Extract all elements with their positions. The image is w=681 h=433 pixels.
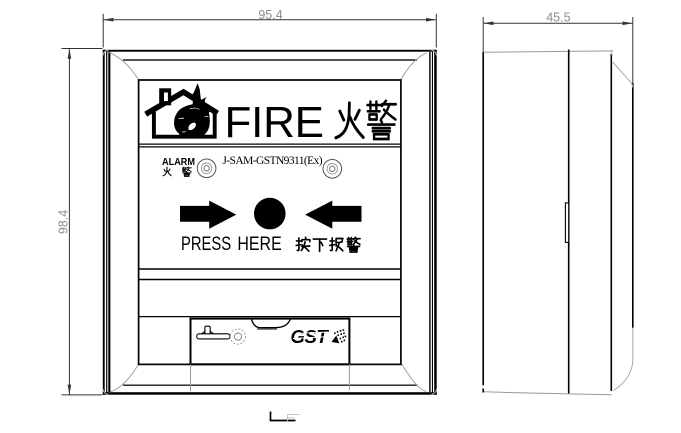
svg-text:FIRE: FIRE — [225, 98, 325, 147]
svg-text:J-SAM-GSTN9311(Ex): J-SAM-GSTN9311(Ex) — [222, 155, 322, 167]
svg-text:95.4: 95.4 — [258, 8, 282, 22]
svg-text:45.5: 45.5 — [546, 11, 570, 25]
svg-text:ALARM: ALARM — [162, 157, 195, 168]
svg-text:98.4: 98.4 — [57, 210, 71, 234]
svg-text:PRESS: PRESS — [181, 233, 231, 254]
svg-text:HERE: HERE — [237, 233, 281, 255]
